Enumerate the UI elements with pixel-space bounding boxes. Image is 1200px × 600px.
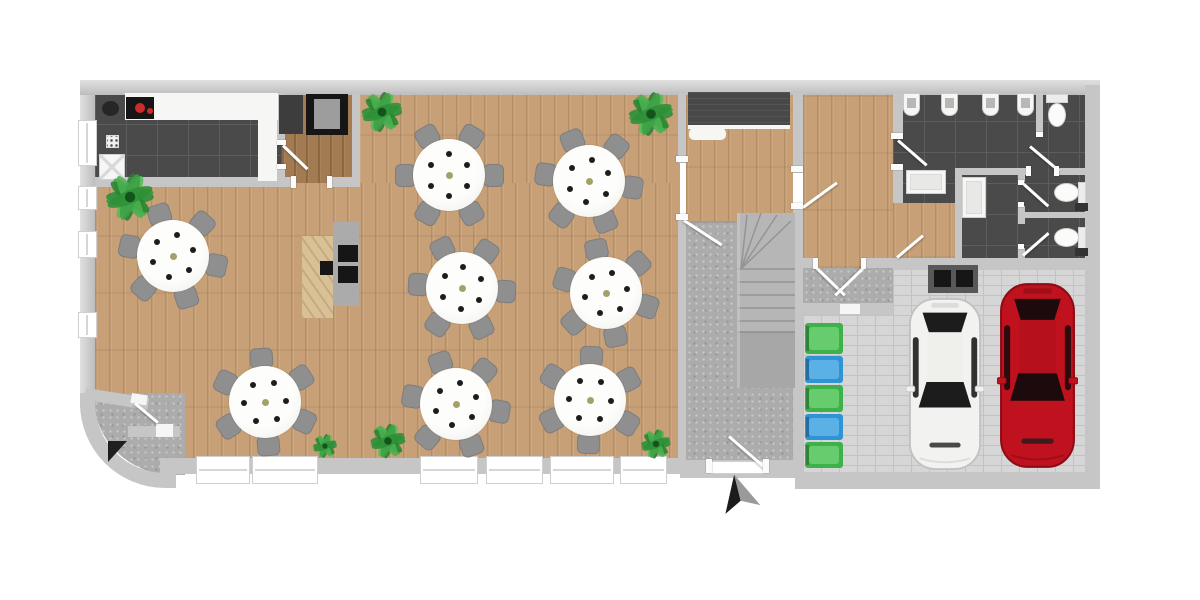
window-glass-line — [86, 189, 88, 207]
place-setting — [464, 162, 470, 168]
cooktop-knob-small — [147, 108, 153, 114]
place-setting — [283, 398, 289, 404]
window-glass-line — [255, 469, 315, 471]
wall-bath-h-left — [955, 168, 1028, 175]
plant-graphic — [312, 433, 338, 459]
waste-bin-edge — [806, 445, 809, 465]
toilet-flush — [1075, 248, 1088, 256]
door-jamb — [1054, 166, 1059, 176]
door-jamb — [1018, 202, 1024, 207]
garage-north-door — [840, 304, 860, 314]
wall-corridor-south-right — [866, 258, 893, 268]
bar-counter-unit — [333, 222, 359, 306]
red-car-graphic — [997, 281, 1078, 470]
toilet-bowl — [1054, 183, 1079, 202]
bar-register — [320, 261, 333, 275]
wall-stall-a-west — [1036, 93, 1043, 136]
place-setting — [457, 380, 463, 386]
toilet-bowl — [1048, 103, 1066, 127]
waste-bin-lid — [809, 360, 839, 379]
wall-pantry-dining — [352, 93, 360, 187]
plant — [369, 422, 407, 460]
toilet-flush — [1075, 203, 1088, 211]
door-jamb — [813, 258, 818, 269]
kitchen-switch-panel — [106, 135, 119, 148]
place-setting — [442, 273, 448, 279]
kitchen-sink-unit — [102, 101, 119, 116]
urinal-basin — [1021, 98, 1030, 108]
plant — [627, 90, 675, 138]
garage-wallbox-screen-left — [934, 270, 951, 287]
waste-bin-edge — [806, 388, 809, 409]
table-centerpiece — [586, 178, 593, 185]
door-jamb — [1018, 244, 1024, 249]
urinal-basin — [986, 98, 995, 108]
door-jamb — [327, 176, 332, 188]
toilet-bowl — [1054, 228, 1079, 247]
plant — [104, 171, 156, 223]
red-car — [997, 281, 1078, 470]
plant-graphic — [369, 422, 407, 460]
place-setting — [428, 162, 434, 168]
door-jamb — [891, 133, 903, 139]
wall-bath-h-right — [1058, 168, 1085, 175]
waste-bin-edge — [806, 417, 809, 437]
wall-bath-south — [893, 258, 1085, 270]
place-setting — [583, 199, 589, 205]
place-setting — [437, 388, 443, 394]
waste-bin-lid — [809, 389, 839, 408]
chair — [577, 433, 601, 455]
chair — [256, 435, 280, 458]
urinal-basin — [945, 98, 954, 108]
window-glass-line — [86, 234, 88, 255]
table-centerpiece — [446, 172, 453, 179]
place-setting — [567, 186, 573, 192]
wall-corridor-bath-mid — [893, 168, 903, 203]
plant — [360, 90, 404, 134]
window-glass-line — [86, 315, 88, 335]
door-jamb — [277, 140, 286, 145]
bar-screen-top — [338, 245, 358, 262]
door-jamb — [706, 459, 712, 473]
place-setting — [253, 418, 259, 424]
place-setting — [250, 382, 256, 388]
place-setting — [190, 247, 196, 253]
waste-bin-edge — [806, 326, 809, 351]
plant-graphic — [104, 171, 156, 223]
wall-hall-corridor-upper — [793, 93, 803, 173]
plant — [640, 428, 672, 460]
white-car — [906, 296, 984, 472]
kitchen-counter-right — [258, 93, 277, 181]
wall-bath-vertical — [955, 175, 962, 258]
pantry-fridge — [279, 95, 303, 134]
place-setting — [446, 151, 452, 157]
window-glass-line — [423, 469, 475, 471]
wall-dining-hall-upper — [678, 93, 686, 163]
table-centerpiece — [603, 290, 610, 297]
table-centerpiece — [170, 253, 177, 260]
door-jamb — [676, 214, 688, 220]
door-jamb — [1018, 180, 1024, 185]
chair — [495, 279, 518, 303]
door-jamb — [763, 459, 769, 473]
toilet-tank — [1046, 94, 1068, 103]
pantry-appliance-screen — [314, 99, 340, 129]
waste-bin-lid — [809, 418, 839, 436]
waste-bin-lid — [809, 327, 839, 350]
place-setting — [166, 274, 172, 280]
wall-dining-hall-lower — [678, 218, 686, 463]
place-setting — [446, 193, 452, 199]
plant-graphic — [627, 90, 675, 138]
door-jamb — [891, 164, 903, 170]
window-glass-line — [86, 123, 88, 163]
door-jamb — [291, 176, 296, 188]
sink-basin — [910, 174, 942, 190]
door-jamb — [676, 156, 688, 162]
place-setting — [597, 310, 603, 316]
entrance-mat — [688, 92, 790, 125]
vestibule-door-dark — [108, 441, 127, 462]
cooktop-knob — [135, 103, 145, 113]
urinal-basin — [907, 98, 916, 108]
toilet-tank — [1078, 182, 1086, 204]
waste-bin-lid — [809, 446, 839, 464]
entrance-shelf — [689, 128, 726, 140]
corridor-floor — [803, 93, 893, 268]
plant — [312, 433, 338, 459]
floor-plan — [0, 0, 1200, 600]
window-glass-line — [623, 469, 664, 471]
vestibule-door-inner — [156, 424, 173, 437]
plant-graphic — [360, 90, 404, 134]
place-setting — [624, 286, 630, 292]
bar-counter-wood — [302, 236, 333, 318]
table-centerpiece — [453, 401, 460, 408]
table-centerpiece — [459, 285, 466, 292]
wall-stalls-divider — [1018, 212, 1085, 218]
place-setting — [597, 416, 603, 422]
place-setting — [478, 276, 484, 282]
chair — [483, 164, 504, 187]
sink-basin — [966, 181, 982, 214]
place-setting — [428, 183, 434, 189]
toilet-tank — [1078, 227, 1086, 249]
table-centerpiece — [587, 397, 594, 404]
door-jamb — [1036, 132, 1043, 137]
staircase-graphic — [737, 213, 795, 388]
window-glass-line — [199, 469, 247, 471]
place-setting — [608, 398, 614, 404]
waste-bin-edge — [806, 359, 809, 380]
door-jamb — [277, 164, 286, 169]
place-setting — [576, 415, 582, 421]
door-jamb — [791, 166, 803, 172]
place-setting — [186, 267, 192, 273]
white-car-graphic — [906, 296, 984, 472]
place-setting — [464, 183, 470, 189]
window-glass-line — [489, 469, 540, 471]
place-setting — [603, 191, 609, 197]
place-setting — [617, 306, 623, 312]
door-jamb — [1026, 166, 1031, 176]
window-glass-line — [553, 469, 611, 471]
bar-screen-bottom — [338, 266, 358, 283]
door-jamb — [791, 203, 803, 209]
wall-right — [1085, 85, 1100, 477]
plant-graphic — [640, 428, 672, 460]
wall-corridor-bath-upper — [893, 93, 903, 138]
table-centerpiece — [262, 399, 269, 406]
staircase — [737, 213, 795, 388]
door-jamb — [861, 258, 866, 269]
place-setting — [473, 394, 479, 400]
garage-wallbox-screen-right — [956, 270, 973, 287]
wall-kitchen-pantry-lower — [277, 168, 285, 187]
wall-bottom-garage — [795, 472, 1100, 489]
place-setting — [458, 306, 464, 312]
